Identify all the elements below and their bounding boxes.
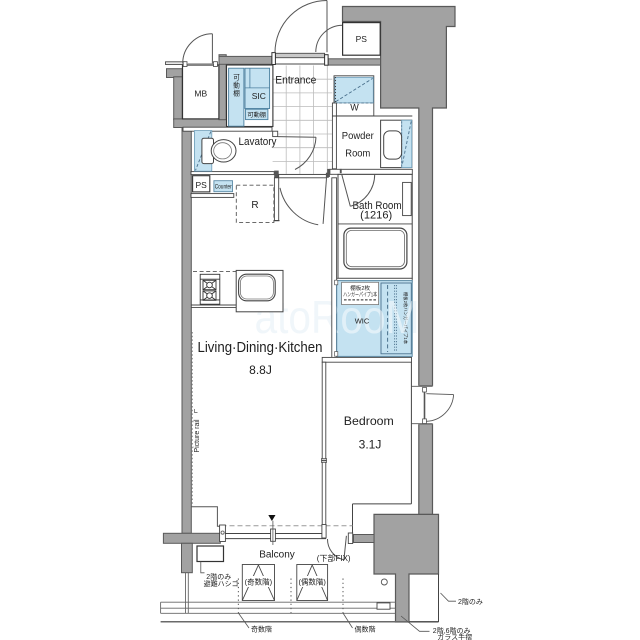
svg-text:Counter: Counter xyxy=(215,185,232,191)
svg-text:Lavatory: Lavatory xyxy=(239,136,277,148)
svg-text:Entrance: Entrance xyxy=(275,75,316,87)
svg-text:可動棚: 可動棚 xyxy=(247,111,266,119)
svg-text:MB: MB xyxy=(194,89,207,99)
svg-text:(下部FIX): (下部FIX) xyxy=(317,553,351,563)
svg-text:Picture rail: Picture rail xyxy=(194,419,201,453)
svg-text:3.1J: 3.1J xyxy=(359,438,382,452)
svg-text:可: 可 xyxy=(233,74,240,82)
svg-text:PS: PS xyxy=(196,180,208,190)
svg-text:動: 動 xyxy=(233,81,240,90)
svg-text:棚: 棚 xyxy=(233,89,240,98)
svg-text:2階のみ: 2階のみ xyxy=(206,572,231,581)
svg-text:R: R xyxy=(251,200,258,211)
svg-text:偶数階: 偶数階 xyxy=(355,625,376,634)
svg-text:Room: Room xyxy=(345,148,370,160)
svg-text:PS: PS xyxy=(356,34,368,44)
svg-text:8.8J: 8.8J xyxy=(249,363,272,377)
svg-text:WIC: WIC xyxy=(355,317,370,326)
svg-text:2階のみ: 2階のみ xyxy=(458,597,483,606)
svg-text:ガラス手摺: ガラス手摺 xyxy=(437,633,472,640)
svg-text:奇数階: 奇数階 xyxy=(251,625,272,634)
svg-text:Powder: Powder xyxy=(342,130,374,142)
svg-text:(1216): (1216) xyxy=(360,210,392,222)
svg-text:W: W xyxy=(350,103,359,113)
svg-text:避難ハシゴ: 避難ハシゴ xyxy=(204,579,239,588)
svg-text:Living·Dining·Kitchen: Living·Dining·Kitchen xyxy=(198,339,323,356)
svg-text:Bedroom: Bedroom xyxy=(344,414,394,428)
svg-text:SIC: SIC xyxy=(252,91,266,101)
svg-text:(奇数階): (奇数階) xyxy=(245,577,273,587)
svg-text:(偶数階): (偶数階) xyxy=(298,577,326,587)
svg-text:Balcony: Balcony xyxy=(259,550,295,561)
